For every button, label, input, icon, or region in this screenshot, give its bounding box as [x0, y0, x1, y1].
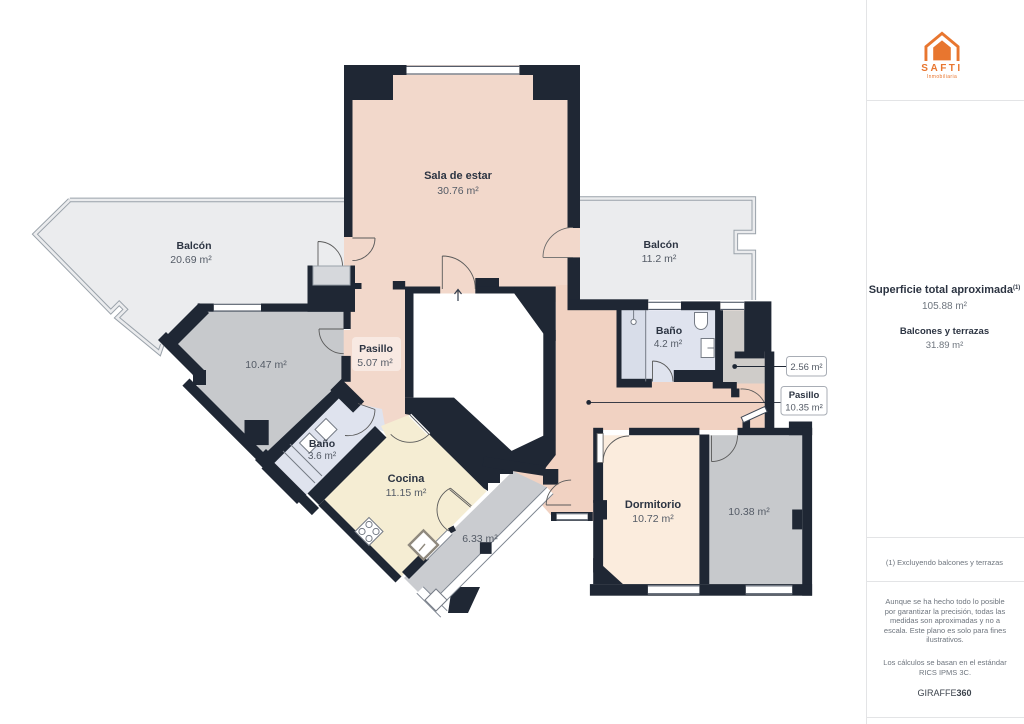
svg-text:Balcón: Balcón — [643, 239, 678, 251]
svg-text:10.35 m²: 10.35 m² — [785, 403, 823, 414]
svg-text:20.69 m²: 20.69 m² — [170, 254, 212, 266]
svg-text:Baño: Baño — [656, 325, 682, 337]
svg-text:Dormitorio: Dormitorio — [625, 499, 682, 511]
svg-text:10.72 m²: 10.72 m² — [632, 513, 674, 525]
svg-text:Baño: Baño — [309, 438, 335, 450]
svg-text:Pasillo: Pasillo — [789, 390, 820, 401]
svg-text:Cocina: Cocina — [388, 473, 426, 485]
svg-text:10.38 m²: 10.38 m² — [728, 506, 770, 518]
svg-text:Balcón: Balcón — [176, 240, 211, 252]
svg-text:11.2 m²: 11.2 m² — [642, 253, 677, 265]
svg-text:6.33 m²: 6.33 m² — [462, 533, 498, 545]
svg-text:30.76 m²: 30.76 m² — [437, 185, 479, 197]
svg-text:11.15 m²: 11.15 m² — [386, 487, 427, 499]
svg-text:2.56 m²: 2.56 m² — [790, 362, 822, 373]
svg-text:3.6 m²: 3.6 m² — [308, 451, 337, 462]
svg-text:5.07 m²: 5.07 m² — [357, 357, 393, 369]
svg-text:4.2 m²: 4.2 m² — [654, 339, 683, 350]
svg-text:Pasillo: Pasillo — [359, 343, 393, 355]
svg-text:Sala de estar: Sala de estar — [424, 170, 493, 182]
svg-text:10.47 m²: 10.47 m² — [245, 359, 287, 371]
